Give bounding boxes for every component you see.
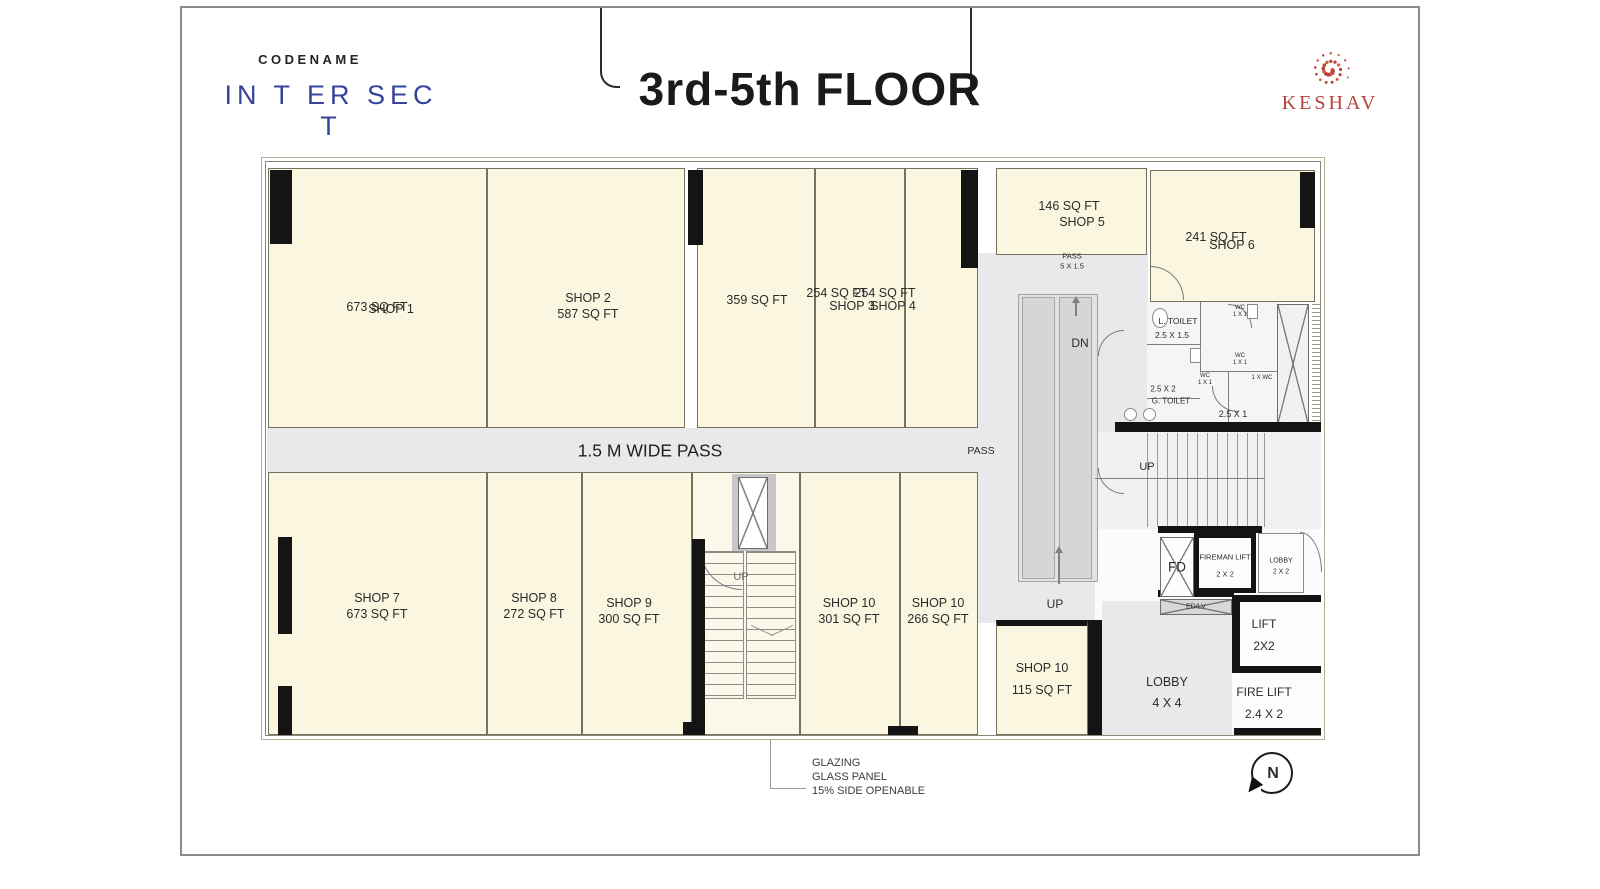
shop2-area-label: 587 SQ FT <box>557 307 618 321</box>
title-callout-line-left <box>600 8 620 88</box>
l-toilet-label: L. TOILET <box>1159 316 1198 326</box>
shop3-name-label: SHOP 3 <box>829 299 875 313</box>
lift-size-label: 2X2 <box>1253 639 1274 653</box>
column <box>961 170 978 268</box>
shop-359-area-label: 359 SQ FT <box>726 293 787 307</box>
size-2-5x1-label: 2.5 X 1 <box>1219 409 1248 419</box>
fire-lift-label: FIRE LIFT <box>1236 685 1291 699</box>
wc-size-text: 1 X 1 <box>1198 380 1212 387</box>
column <box>888 726 918 735</box>
shop10-301-area-label: 301 SQ FT <box>818 612 879 626</box>
lift-box <box>1240 602 1321 666</box>
glazing-note-line3: 15% SIDE OPENABLE <box>812 784 925 798</box>
wide-pass-label: 1.5 M WIDE PASS <box>578 441 723 462</box>
column <box>683 722 703 735</box>
pass-small-size-label: 5 X 1.5 <box>1060 262 1084 271</box>
core-wall <box>1158 526 1262 533</box>
lobby-main-label: LOBBY <box>1146 675 1188 689</box>
toilet-fixture-wc <box>1247 304 1258 319</box>
column <box>278 686 292 735</box>
shop10-115-name-label: SHOP 10 <box>1016 661 1069 675</box>
core-wall <box>1234 666 1321 673</box>
column <box>1300 172 1315 228</box>
brand-name: KESHAV <box>1260 92 1400 115</box>
shop4-area-label: 254 SQ FT <box>854 286 915 300</box>
core-wall <box>1115 422 1321 432</box>
shop5-area-label: 146 SQ FT <box>1038 199 1099 213</box>
core-wall <box>1234 728 1321 735</box>
toilet-partition <box>1147 344 1201 345</box>
room-shop1 <box>268 168 487 428</box>
column <box>688 170 703 245</box>
toilet-fixture-basin <box>1124 408 1137 421</box>
column <box>692 539 705 735</box>
core-wall <box>1088 620 1102 735</box>
fireman-lift-size-label: 2 X 2 <box>1216 570 1234 579</box>
stair-right-treads <box>1147 433 1265 527</box>
shop4-name-label: SHOP 4 <box>870 299 916 313</box>
g-toilet-label: G. TOILET <box>1152 397 1190 406</box>
glazing-note: GLAZING GLASS PANEL 15% SIDE OPENABLE <box>812 756 925 798</box>
wc-label: WC 1 X 1 <box>1233 353 1247 367</box>
shop8-area-label: 272 SQ FT <box>503 607 564 621</box>
fire-lift-size-label: 2.4 X 2 <box>1245 707 1283 721</box>
shop9-area-label: 300 SQ FT <box>598 612 659 626</box>
room-shop10-115 <box>996 620 1088 735</box>
ramp-arrow-top <box>1075 302 1077 316</box>
lift-label: LIFT <box>1252 617 1277 631</box>
stair-center-up-label: UP <box>733 571 748 583</box>
pass-small-label: PASS <box>1062 252 1081 261</box>
shop1-name-label: SHOP 1 <box>368 302 414 316</box>
ramp-dn-label: DN <box>1071 336 1088 350</box>
column <box>278 537 292 634</box>
fd-label: FD <box>1168 560 1186 575</box>
toilet-fixture-basin <box>1143 408 1156 421</box>
shop7-area-label: 673 SQ FT <box>346 607 407 621</box>
ramp-up-label: UP <box>1047 597 1064 611</box>
edlv-label: ED/LV <box>1186 604 1206 611</box>
wc-alt-label: 1 X WC <box>1252 375 1273 381</box>
wall-hatch-strip <box>1312 304 1321 424</box>
stair-right-up-label: UP <box>1139 461 1154 473</box>
wc-label: WC 1 X 1 <box>1198 373 1212 387</box>
shop5-name-label: SHOP 5 <box>1059 215 1105 229</box>
ramp-arrow-bottom-head <box>1055 546 1063 553</box>
core-wall <box>1232 595 1240 673</box>
g-toilet-size-label: 2.5 X 2 <box>1150 385 1175 394</box>
shop2-name-label: SHOP 2 <box>565 291 611 305</box>
l-toilet-size-label: 2.5 X 1.5 <box>1155 330 1189 340</box>
wc-text: WC <box>1198 373 1212 380</box>
wc-size-text: 1 X 1 <box>1233 360 1247 367</box>
toilet-partition <box>1228 371 1229 428</box>
toilet-fixture-wc <box>1190 348 1201 363</box>
floor-title: 3rd-5th FLOOR <box>620 62 1000 116</box>
stair-center-shaft <box>738 477 768 549</box>
shop10-115-area-label: 115 SQ FT <box>1012 683 1072 697</box>
shop9-name-label: SHOP 9 <box>606 596 652 610</box>
lobby-small-size-label: 2 X 2 <box>1273 569 1289 576</box>
codename-label: CODENAME <box>240 52 380 67</box>
shop6-name-label: SHOP 6 <box>1209 238 1255 252</box>
shop10-266-name-label: SHOP 10 <box>912 596 965 610</box>
pass-label: PASS <box>967 445 994 457</box>
wc-text: WC <box>1233 353 1247 360</box>
ramp-arrow-top-head <box>1072 296 1080 303</box>
brand-logo-dots <box>1300 48 1360 92</box>
lobby-small-label: LOBBY <box>1269 558 1292 565</box>
lobby-main-size-label: 4 X 4 <box>1152 696 1181 710</box>
shop7-name-label: SHOP 7 <box>354 591 400 605</box>
toilet-partition <box>1200 371 1278 372</box>
wc-text: WC <box>1233 305 1247 312</box>
ramp-arrow-bottom <box>1058 552 1060 584</box>
wc-size-text: 1 X 1 <box>1233 312 1247 319</box>
wc-label: WC 1 X 1 <box>1233 305 1247 319</box>
shop8-name-label: SHOP 8 <box>511 591 557 605</box>
service-shaft <box>1277 304 1309 424</box>
shop10-266-area-label: 266 SQ FT <box>907 612 968 626</box>
column <box>270 170 292 244</box>
shop10-301-name-label: SHOP 10 <box>823 596 876 610</box>
north-label: N <box>1267 765 1279 783</box>
ramp-lane-left <box>1022 297 1055 579</box>
glazing-leader-h <box>770 788 806 789</box>
glazing-leader-v <box>770 740 771 788</box>
project-name: IN T ER SEC T <box>216 80 446 142</box>
core-wall <box>1234 595 1321 602</box>
fireman-lift-label: FIREMAN LIFT <box>1199 553 1250 562</box>
glazing-note-line1: GLAZING <box>812 756 925 770</box>
main-lobby-area <box>1102 601 1232 735</box>
fireman-lift-box <box>1194 533 1256 593</box>
glazing-note-line2: GLASS PANEL <box>812 770 925 784</box>
